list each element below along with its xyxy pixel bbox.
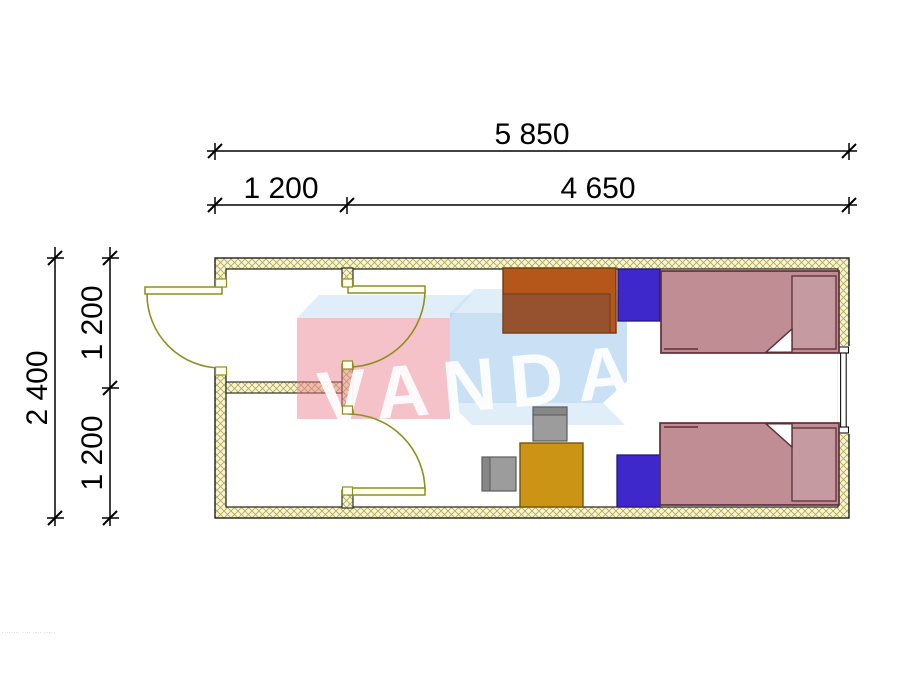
floor-plan-drawing: VANDA (0, 0, 924, 700)
wardrobe (503, 268, 616, 333)
watermark-pink-box-top-face (297, 295, 472, 318)
dimension-side-segments: 1 200 1 200 (76, 247, 119, 526)
dimension-side-total: 2 400 (21, 247, 64, 526)
dimension-label-side-upper: 1 200 (76, 285, 109, 360)
table (520, 443, 583, 507)
floor-plan-canvas: VANDA (0, 0, 924, 700)
entrance-door-swing-arc (147, 294, 221, 368)
wardrobe-front-panel (503, 294, 610, 333)
interior-door-lower-leaf (348, 488, 425, 495)
interior-door-upper-jamb-top (343, 279, 353, 287)
dimension-top-total: 5 850 (207, 118, 857, 160)
window-jamb-top (839, 347, 849, 353)
bed-top (661, 271, 839, 353)
interior-door-lower-jamb-top (343, 406, 353, 414)
entrance-door-jamb-top (216, 279, 227, 287)
bed-bottom-pillow (792, 428, 836, 501)
interior-door-upper-jamb-bottom (343, 361, 353, 369)
chair-left-backrest (482, 457, 490, 491)
dimension-label-top-right: 4 650 (560, 172, 635, 205)
interior-door-lower-jamb-bottom (343, 487, 353, 495)
dimension-label-side-lower: 1 200 (76, 415, 109, 490)
dimension-label-side-total: 2 400 (21, 350, 54, 425)
bed-top-pillow (792, 276, 836, 349)
dimension-label-top-left: 1 200 (243, 172, 318, 205)
chair-left (482, 457, 516, 491)
corner-microtext: ········ ···· ·-·· ··-·· (2, 630, 72, 636)
dimension-top-segments: 1 200 4 650 (207, 172, 857, 214)
entrance-door-jamb-bottom (216, 367, 227, 375)
interior-door-upper-leaf (348, 286, 425, 293)
chair-top-backrest (533, 407, 567, 415)
entrance-door-leaf (145, 287, 222, 294)
entrance-opening (214, 287, 229, 367)
window-jamb-bottom (839, 427, 849, 433)
nightstand-top (618, 269, 660, 321)
bed-bottom (660, 423, 839, 505)
window (837, 346, 850, 434)
dimension-label-top-total: 5 850 (494, 118, 569, 151)
nightstand-bottom (617, 455, 660, 507)
window-glazing (841, 353, 847, 427)
chair-top (533, 407, 567, 441)
